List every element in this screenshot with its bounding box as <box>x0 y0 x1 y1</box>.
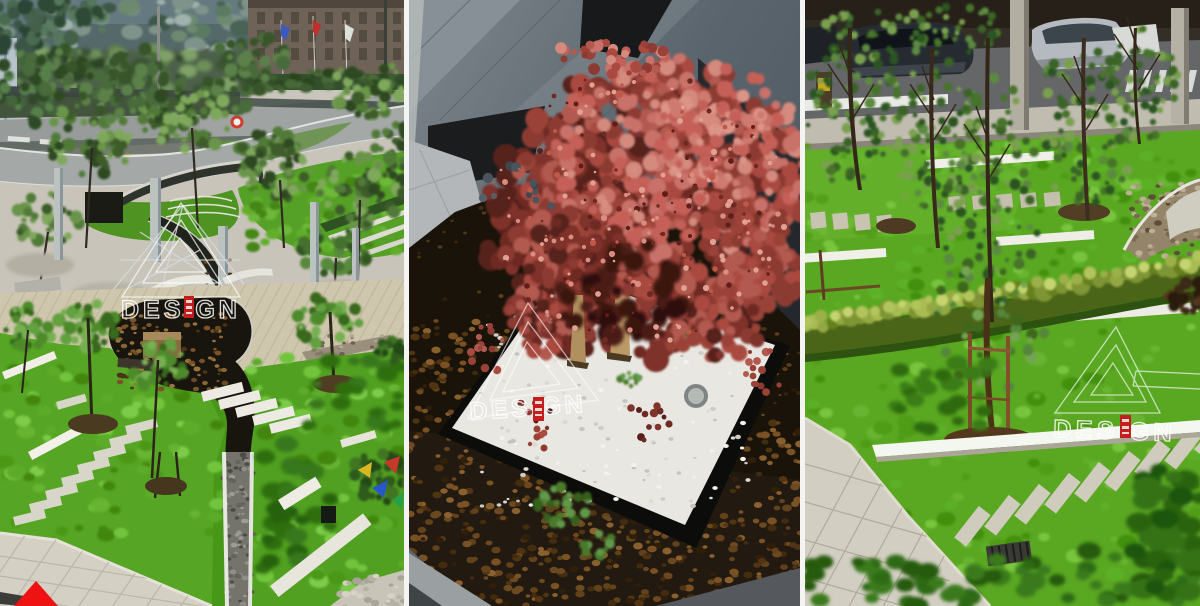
svg-text:DES GN: DES GN <box>121 296 241 324</box>
